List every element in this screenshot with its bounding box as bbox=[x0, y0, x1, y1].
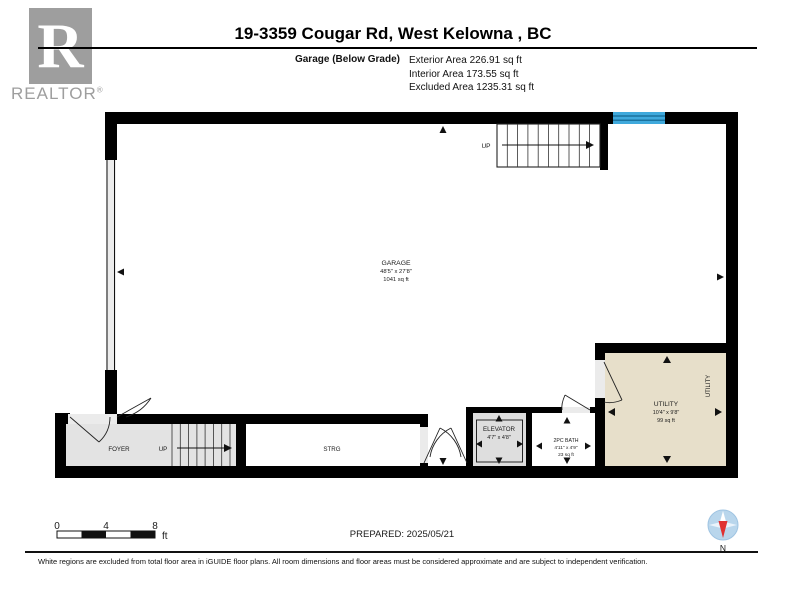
foyer-label: FOYER bbox=[108, 446, 130, 453]
garage-label: GARAGE bbox=[381, 260, 411, 267]
stairs-top-up-label: UP bbox=[481, 143, 490, 150]
floorplan-page: { "header": { "logo_r": "R", "logo_text"… bbox=[0, 0, 800, 600]
scale-tick-8: 8 bbox=[152, 521, 158, 532]
garage-area: 1041 sq ft bbox=[383, 277, 409, 283]
footer-divider bbox=[25, 551, 758, 553]
garage-dims: 48'5" x 27'8" bbox=[380, 269, 412, 275]
window bbox=[613, 112, 665, 124]
scale-bar: 0 4 8 ft bbox=[54, 521, 168, 542]
scale-tick-4: 4 bbox=[103, 521, 109, 532]
elevator-label: ELEVATOR bbox=[483, 426, 516, 433]
utility-dims: 10'4" x 9'8" bbox=[653, 410, 680, 416]
bath-label: 2PC BATH bbox=[554, 438, 579, 444]
bath-dims: 4'11" x 4'9" bbox=[554, 445, 578, 451]
scale-unit: ft bbox=[162, 531, 168, 542]
floorplan-svg: UP UP GARAGE 48' bbox=[0, 0, 800, 600]
staircase-top: UP bbox=[481, 124, 600, 167]
disclaimer-text: White regions are excluded from total fl… bbox=[38, 557, 648, 566]
utility-label: UTILITY bbox=[654, 401, 679, 408]
strg-label: STRG bbox=[323, 446, 340, 453]
garage-door bbox=[106, 160, 116, 370]
scale-tick-0: 0 bbox=[54, 521, 60, 532]
stairs-bottom-up-label: UP bbox=[159, 446, 168, 453]
utility-area: 99 sq ft bbox=[657, 418, 675, 424]
bath-area: 23 sq ft bbox=[558, 452, 574, 458]
elevator-dims: 4'7" x 4'8" bbox=[487, 435, 511, 441]
prepared-date: PREPARED: 2025/05/21 bbox=[350, 529, 454, 540]
compass: N bbox=[708, 510, 738, 553]
utility-side-label: UTILITY bbox=[706, 375, 712, 397]
